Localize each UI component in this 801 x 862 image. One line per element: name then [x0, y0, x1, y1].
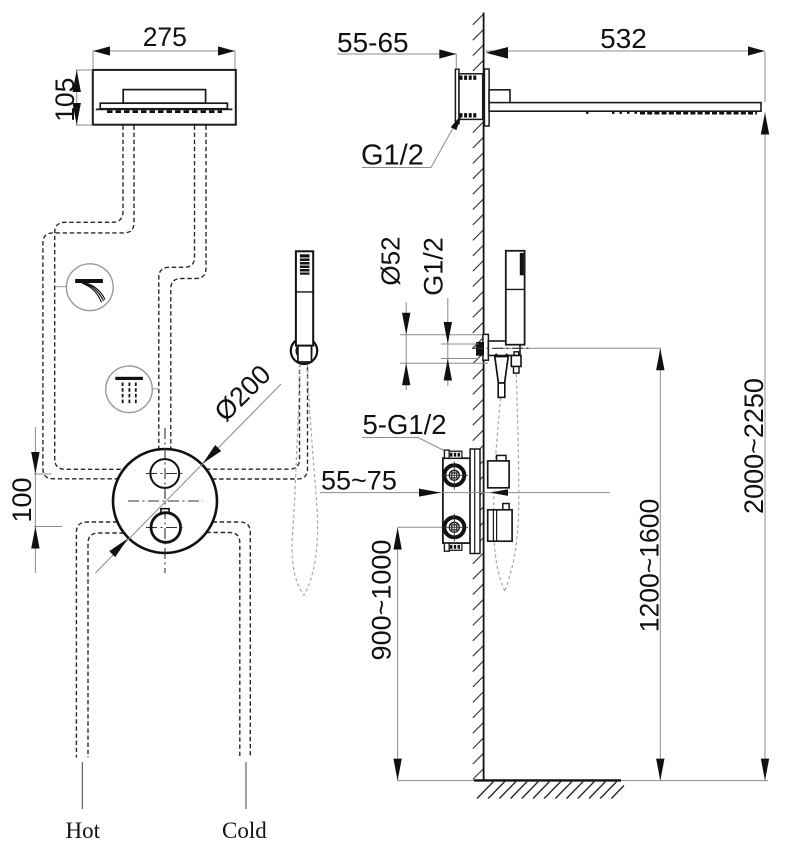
svg-text:100: 100 — [7, 477, 37, 522]
svg-text:532: 532 — [600, 23, 647, 54]
svg-text:Cold: Cold — [222, 818, 267, 843]
svg-text:G1/2: G1/2 — [361, 140, 424, 172]
svg-text:G1/2: G1/2 — [419, 237, 449, 296]
svg-text:900~1000: 900~1000 — [367, 540, 397, 661]
svg-text:55-65: 55-65 — [337, 27, 409, 58]
svg-text:Hot: Hot — [66, 818, 101, 843]
svg-text:105: 105 — [50, 78, 80, 122]
svg-text:275: 275 — [143, 22, 187, 52]
svg-text:55~75: 55~75 — [321, 466, 397, 496]
svg-text:Ø52: Ø52 — [376, 236, 406, 285]
svg-text:1200~1600: 1200~1600 — [635, 499, 665, 632]
svg-text:5-G1/2: 5-G1/2 — [363, 409, 447, 440]
svg-text:2000~2250: 2000~2250 — [739, 378, 769, 514]
